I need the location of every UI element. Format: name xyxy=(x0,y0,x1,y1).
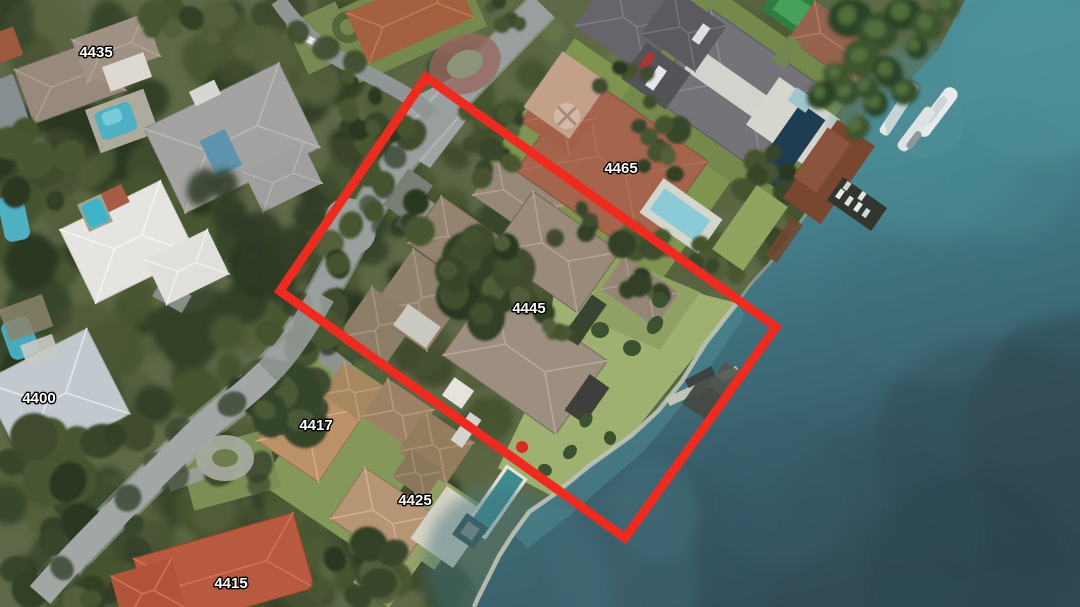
svg-text:4400: 4400 xyxy=(22,390,55,407)
svg-text:4445: 4445 xyxy=(512,300,545,317)
svg-text:4465: 4465 xyxy=(604,160,637,177)
svg-text:4425: 4425 xyxy=(398,492,431,509)
svg-text:4435: 4435 xyxy=(79,44,112,61)
svg-text:4417: 4417 xyxy=(299,417,332,434)
svg-text:4415: 4415 xyxy=(214,575,247,592)
